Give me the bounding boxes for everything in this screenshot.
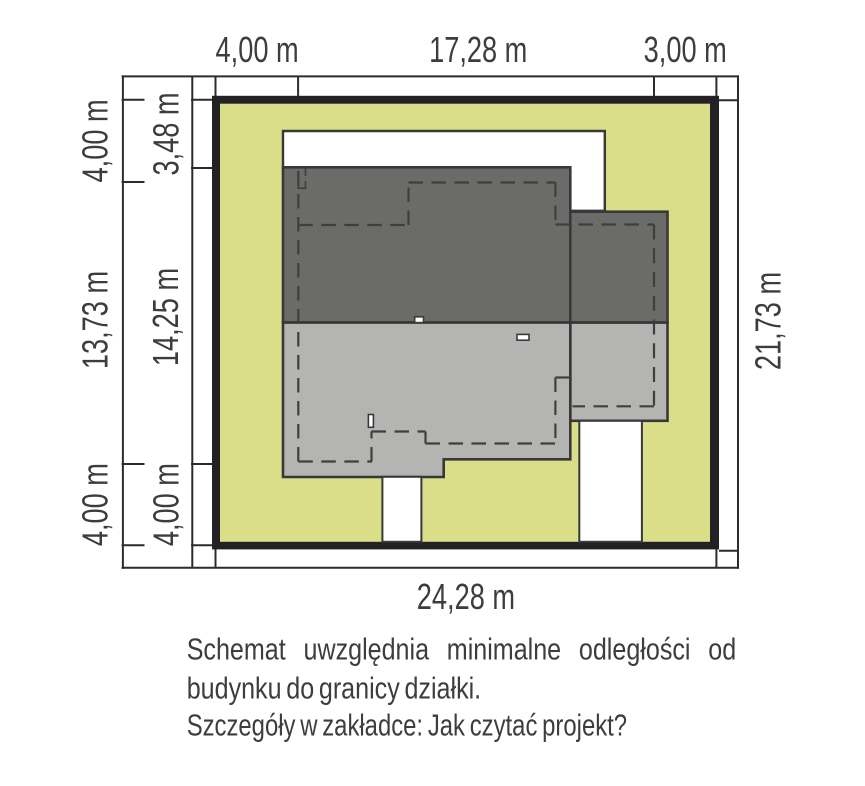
svg-text:21,73 m: 21,73 m <box>748 272 789 370</box>
svg-text:4,00 m: 4,00 m <box>146 463 187 546</box>
svg-text:4,00 m: 4,00 m <box>75 463 116 546</box>
svg-text:13,73 m: 13,73 m <box>75 271 116 369</box>
svg-text:odległości: odległości <box>579 631 691 666</box>
svg-text:3,48 m: 3,48 m <box>146 92 187 175</box>
svg-text:4,00 m: 4,00 m <box>216 29 299 70</box>
svg-text:Schemat: Schemat <box>187 631 286 666</box>
svg-text:14,25 m: 14,25 m <box>145 268 186 366</box>
svg-text:4,00 m: 4,00 m <box>75 99 116 182</box>
svg-text:budynku do granicy działki.: budynku do granicy działki. <box>187 670 481 705</box>
svg-text:od: od <box>708 631 736 666</box>
svg-text:3,00 m: 3,00 m <box>644 29 727 70</box>
svg-text:Szczegóły w zakładce: Jak czyt: Szczegóły w zakładce: Jak czytać projekt… <box>187 708 627 743</box>
svg-text:17,28 m: 17,28 m <box>429 29 527 70</box>
svg-text:minimalne: minimalne <box>447 631 561 666</box>
svg-text:24,28 m: 24,28 m <box>417 576 515 617</box>
svg-text:uwzględnia: uwzględnia <box>304 631 430 666</box>
